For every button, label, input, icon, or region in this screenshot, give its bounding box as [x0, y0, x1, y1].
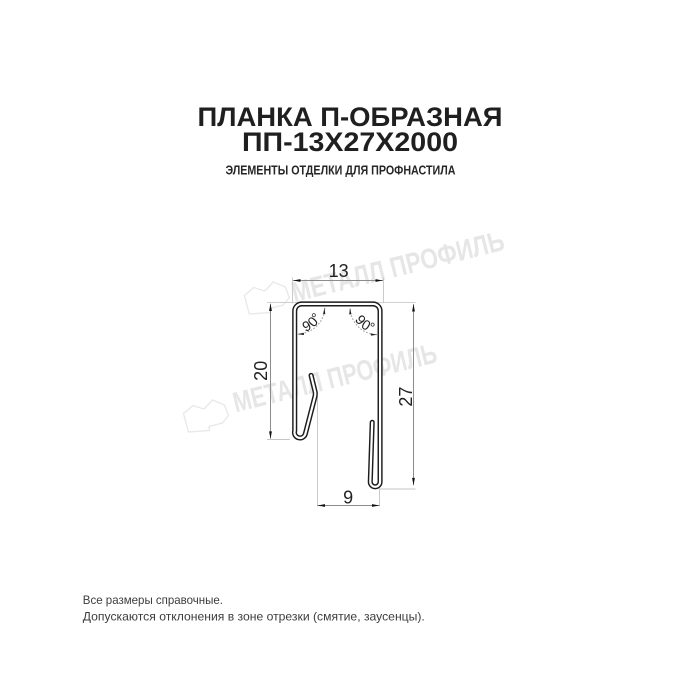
svg-text:27: 27 — [396, 387, 416, 407]
svg-text:9: 9 — [343, 488, 353, 508]
svg-text:Допускаются отклонения в зоне: Допускаются отклонения в зоне отрезки (с… — [83, 609, 425, 623]
svg-text:13: 13 — [329, 261, 349, 281]
svg-text:ПП-13Х27Х2000: ПП-13Х27Х2000 — [242, 127, 458, 157]
svg-text:20: 20 — [251, 361, 271, 381]
svg-text:ЭЛЕМЕНТЫ ОТДЕЛКИ ДЛЯ ПРОФНАСТИ: ЭЛЕМЕНТЫ ОТДЕЛКИ ДЛЯ ПРОФНАСТИЛА — [226, 164, 456, 178]
svg-text:Все размеры справочные.: Все размеры справочные. — [83, 593, 223, 607]
